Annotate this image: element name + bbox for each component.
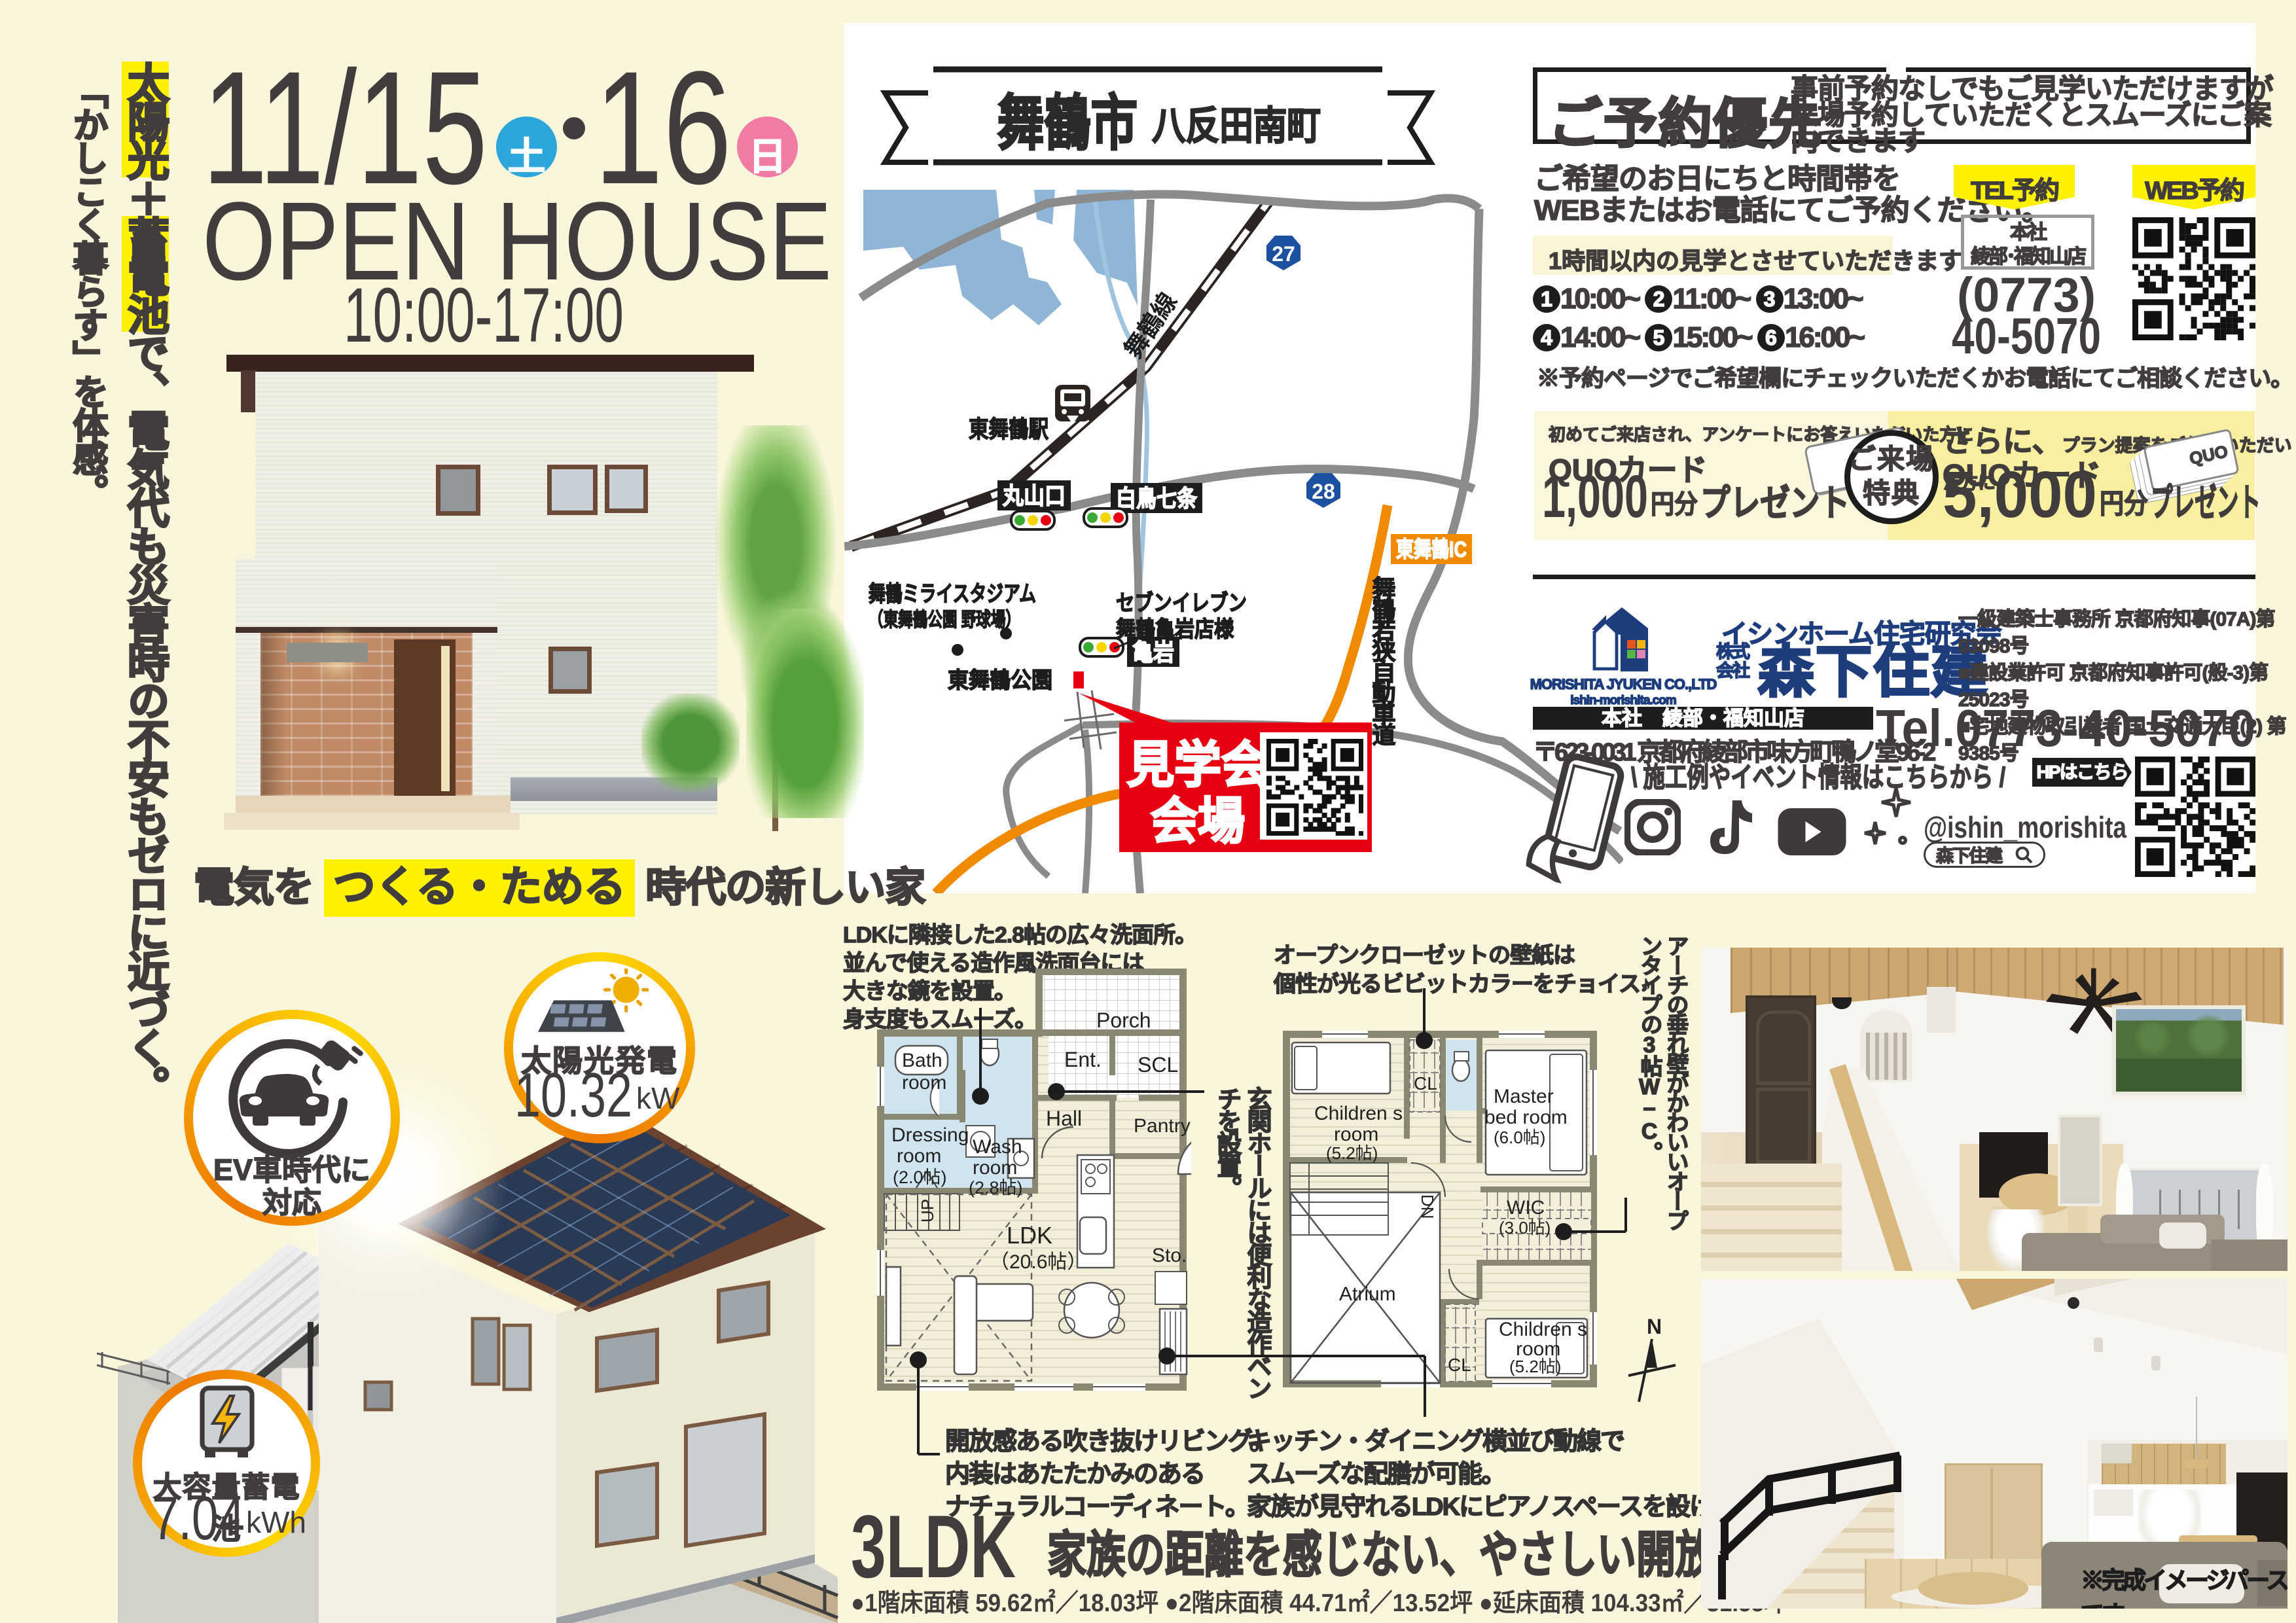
svg-text:東舞鶴公園: 東舞鶴公園 <box>948 668 1052 693</box>
svg-text:舞鶴若狭自動車道: 舞鶴若狭自動車道 <box>1369 576 1396 746</box>
svg-text:東舞鶴IC: 東舞鶴IC <box>1396 537 1467 562</box>
svg-text:1,000: 1,000 <box>1542 470 1648 529</box>
svg-text:八反田南町: 八反田南町 <box>1152 104 1321 148</box>
svg-text:プレゼント: プレゼント <box>1700 482 1850 524</box>
svg-text:10:00-17:00: 10:00-17:00 <box>344 272 624 353</box>
svg-text:舞鶴市: 舞鶴市 <box>997 90 1138 157</box>
svg-text:28: 28 <box>1312 480 1335 503</box>
svg-text:見学会: 見学会 <box>1127 738 1268 793</box>
svg-text:亀岩: 亀岩 <box>1132 639 1174 666</box>
svg-text:丸山口: 丸山口 <box>1002 482 1066 509</box>
svg-text:5,000: 5,000 <box>1943 466 2097 529</box>
svg-text:@ishin_morishita: @ishin_morishita <box>1924 810 2126 844</box>
svg-text:白鳥七条: 白鳥七条 <box>1116 485 1197 512</box>
svg-text:Tel.0773-40-5070: Tel.0773-40-5070 <box>1876 702 2255 757</box>
svg-text:舞鶴ミライスタジアム: 舞鶴ミライスタジアム <box>869 582 1036 607</box>
svg-text:N: N <box>1647 1315 1662 1338</box>
svg-text:円分: 円分 <box>1651 490 1698 519</box>
svg-text:プレゼント: プレゼント <box>2151 482 2261 524</box>
svg-text:セブンイレブン: セブンイレブン <box>1116 590 1247 616</box>
svg-text:7.04: 7.04 <box>152 1492 245 1551</box>
svg-text:家族の距離を感じない、やさしい開放感。: 家族の距離を感じない、やさしい開放感。 <box>1047 1527 1793 1583</box>
svg-text:舞鶴亀岩店様: 舞鶴亀岩店様 <box>1116 617 1234 642</box>
svg-text:kW: kW <box>636 1081 680 1115</box>
svg-text:円分: 円分 <box>2100 488 2148 519</box>
svg-text:\ 施工例やイベント情報はこちらから /: \ 施工例やイベント情報はこちらから / <box>1631 762 2005 793</box>
svg-text:27: 27 <box>1272 242 1295 266</box>
svg-text:40-5070: 40-5070 <box>1952 307 2101 359</box>
svg-text:10.32: 10.32 <box>514 1068 632 1127</box>
svg-text:kWh: kWh <box>246 1505 306 1539</box>
svg-text:東舞鶴駅: 東舞鶴駅 <box>969 416 1049 442</box>
svg-text:（東舞鶴公園 野球場）: （東舞鶴公園 野球場） <box>869 609 1020 631</box>
svg-text:●1階床面積 59.62㎡／18.03坪 ●2階床面積 44: ●1階床面積 59.62㎡／18.03坪 ●2階床面積 44.71㎡／13.52… <box>851 1589 1787 1617</box>
svg-text:3LDK: 3LDK <box>851 1507 1016 1592</box>
svg-text:会場: 会場 <box>1151 794 1245 849</box>
